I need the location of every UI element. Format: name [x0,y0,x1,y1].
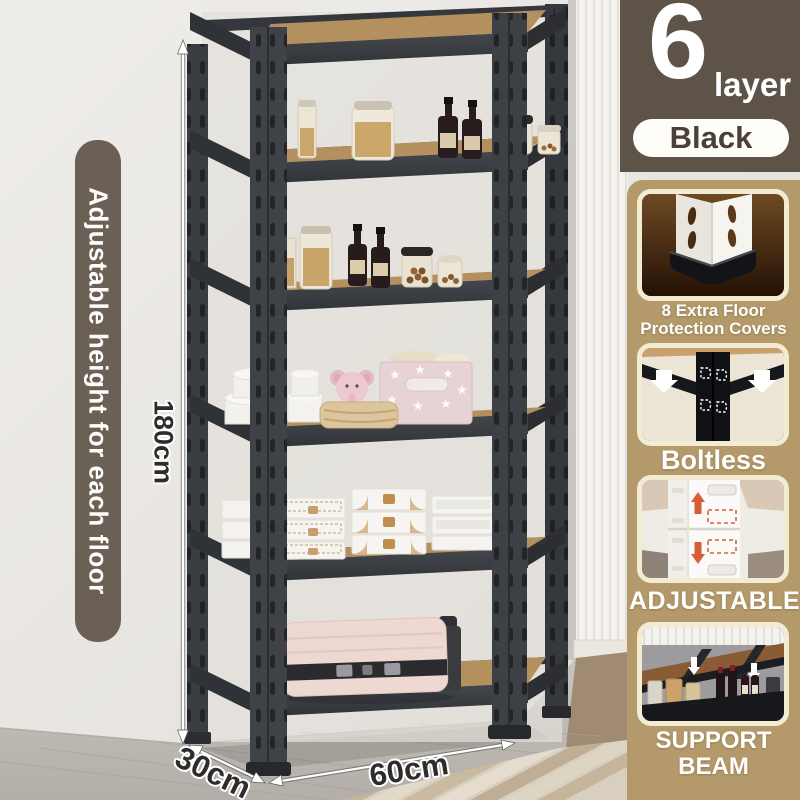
floor-protection-corner-icon [642,194,784,296]
boltless-thumbnail [637,343,789,446]
adjustable-thumbnail [637,475,789,583]
banner-text: Adjustable height for each floor [83,187,114,594]
feature-sidebar: 8 Extra Floor Protection Covers Boltless [627,180,800,800]
support-beam-thumbnail [637,622,789,726]
shelf-post-front-left [246,27,291,776]
color-badge: Black [633,119,789,157]
height-dimension-label: 180cm [148,400,179,484]
nut-jar [401,247,433,287]
layer-unit: layer [714,66,791,104]
nut-jar [537,125,561,154]
product-listing-image: 180cm 30cm 60cm Adjustable height for ea… [0,0,800,800]
luggage-row [277,616,461,704]
floor-protection-thumbnail [637,189,789,301]
adjustable-slots-icon [642,480,784,578]
shelf-post-front-right [488,13,531,739]
feature-caption: ADJUSTABLE [629,588,798,615]
grain-jar [300,226,332,289]
storage-basket [320,402,398,428]
boltless-post-icon [642,348,784,441]
feature-caption: SUPPORT BEAM [629,728,798,780]
feature-caption: Boltless [629,446,798,475]
feature-caption: 8 Extra Floor Protection Covers [629,302,798,339]
layer-count: 6 [648,0,708,103]
white-storage-boxes [432,496,494,550]
layer-count-badge: 6 layer Black [620,0,800,172]
nut-jar [438,255,462,287]
grain-jar [298,100,316,158]
ornament-drawer-stack [281,498,345,559]
clasp-drawer-stack [352,489,426,554]
adjustable-height-banner: Adjustable height for each floor [75,140,121,642]
shelf-post-back-right [542,4,571,718]
grain-jar [352,101,394,160]
pink-suitcase [282,617,448,697]
support-beam-underside-icon [642,627,784,721]
